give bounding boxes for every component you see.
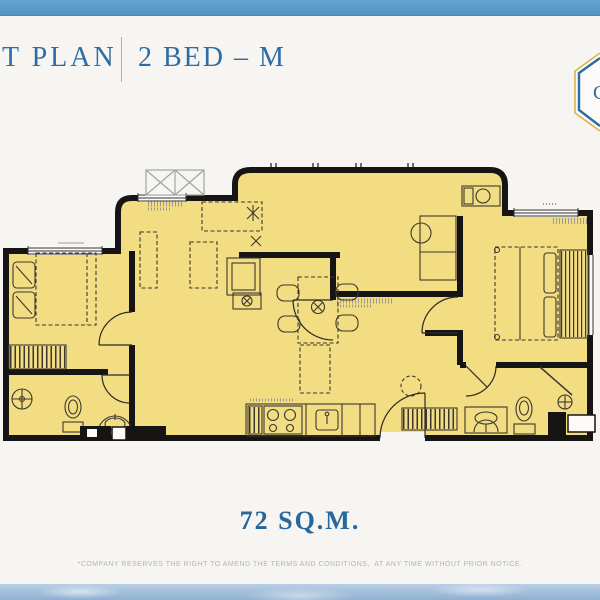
sky-image-band xyxy=(0,584,600,600)
shower-left-icon xyxy=(12,389,32,409)
badge-octagon-icon: C xyxy=(570,52,600,132)
badge-letter: C xyxy=(593,82,600,104)
disclaimer-text: *COMPANY RESERVES THE RIGHT TO AMEND THE… xyxy=(0,561,600,568)
floor-plan xyxy=(0,150,600,462)
page-title-unit: 2 BED – M xyxy=(138,42,286,74)
header: T PLAN 2 BED – M C xyxy=(0,0,600,110)
window-bedroom-right-icon xyxy=(514,208,578,217)
unit-plan-page: { "header": { "title_prefix": "T PLAN", … xyxy=(0,0,600,600)
floor-plan-svg xyxy=(0,150,600,462)
title-separator xyxy=(121,37,122,82)
area-label: 72 SQ.M. xyxy=(0,506,600,536)
brand-badge: C xyxy=(570,52,600,132)
window-living-icon xyxy=(138,193,186,202)
page-title-prefix: T PLAN xyxy=(2,42,117,74)
entrance-opening xyxy=(380,432,425,442)
ac-unit-icon xyxy=(146,170,204,195)
